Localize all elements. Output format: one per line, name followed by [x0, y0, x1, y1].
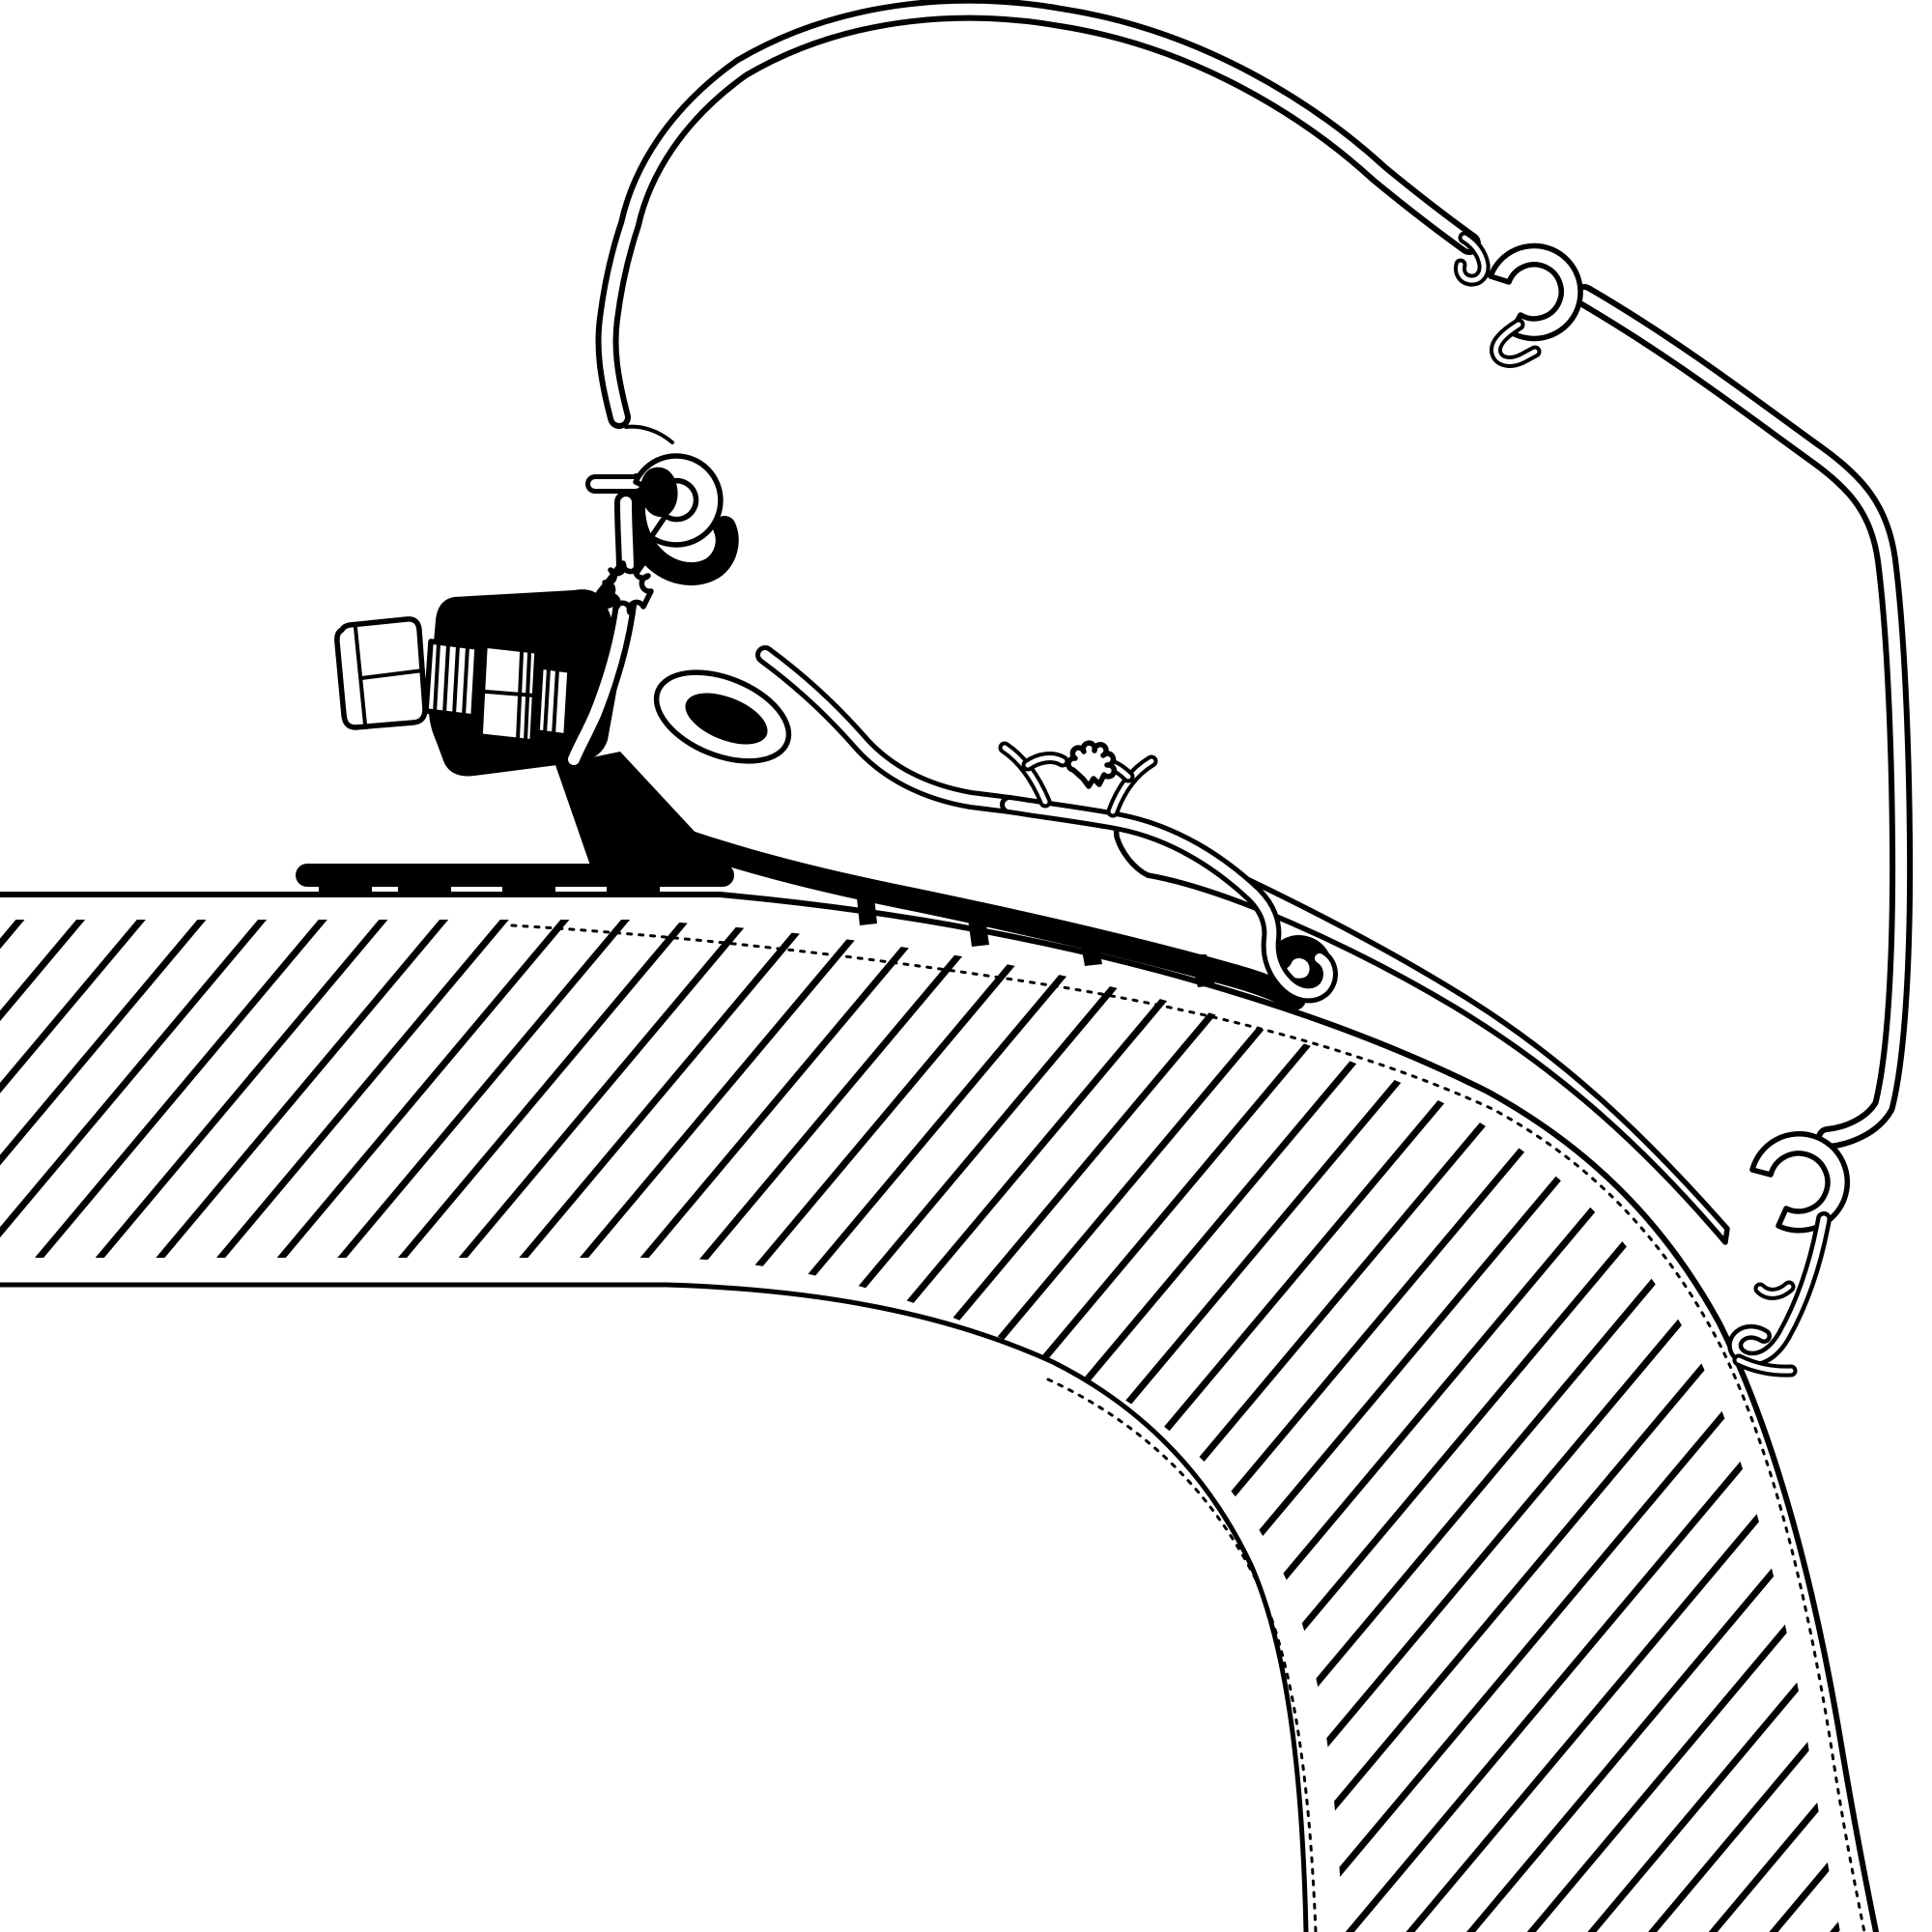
foot-rib	[319, 883, 372, 896]
foot-rib	[398, 883, 451, 896]
diagram-page	[0, 0, 1932, 1932]
awning-adapter-diagram	[0, 0, 1932, 1932]
foot-rib	[502, 883, 555, 896]
foot-rib	[607, 883, 660, 896]
